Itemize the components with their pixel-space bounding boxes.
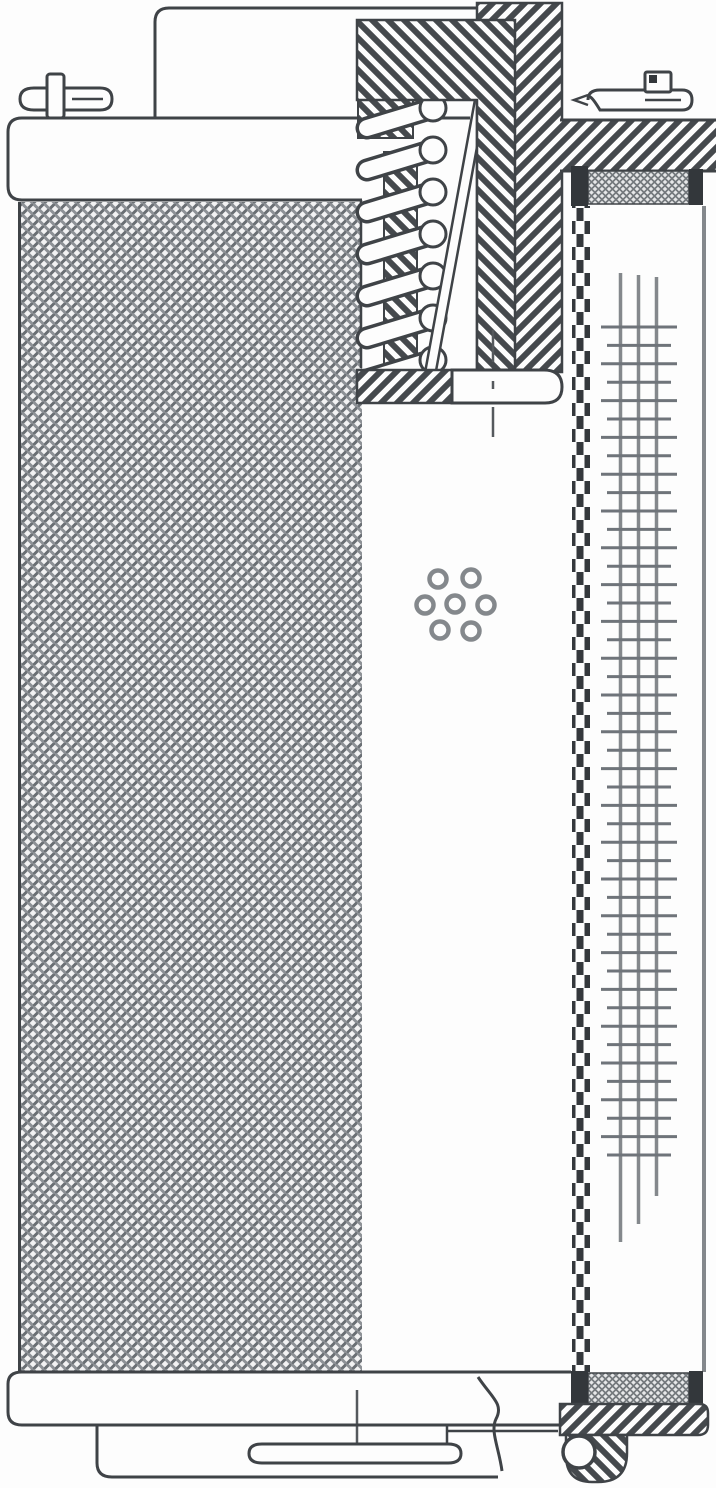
bottom-bayonet-lug: [249, 1444, 461, 1463]
bottom-end-cap: [8, 1372, 571, 1477]
bottom-cap-band-outline: [8, 1372, 571, 1425]
mesh-body: [18, 202, 362, 1372]
spring-coil-end: [420, 179, 446, 205]
perforated-core-strip: [572, 206, 590, 1372]
bottom-gasket-mesh: [588, 1373, 689, 1404]
spring-seat-hatched: [357, 370, 452, 403]
outer-mesh-screen: [18, 202, 362, 1372]
right-tab-tip: [574, 95, 588, 105]
perforation-hole: [463, 570, 480, 587]
perforation-hole: [463, 623, 480, 640]
bottom-gasket-left-block: [571, 1371, 588, 1406]
perforation-hole: [447, 596, 464, 613]
bottom-flange-hatched: [560, 1404, 708, 1435]
top-gasket-right-block: [689, 169, 703, 205]
flange-hatched-band: [560, 119, 716, 172]
top-gasket-left-block: [571, 166, 588, 206]
bottom-gasket-right-block: [689, 1371, 703, 1406]
right-bayonet-tab: [574, 72, 692, 110]
center-perforations: [417, 570, 495, 640]
top-gasket-mesh: [588, 171, 689, 204]
spring-seat-plate: [452, 370, 562, 403]
right-filter-column: [560, 166, 708, 1482]
right-tab-post: [645, 72, 671, 92]
spring-coil-end: [420, 221, 446, 247]
seal-oring: [563, 1436, 595, 1468]
drawing-canvas: Filter element cross-section technical d…: [0, 0, 716, 1488]
perforation-hole: [478, 597, 495, 614]
perforation-hole: [430, 571, 447, 588]
filter-element-drawing: Filter element cross-section technical d…: [0, 0, 716, 1488]
pleated-media: [601, 273, 677, 1242]
centerlines: [357, 330, 493, 1443]
right-top-flange: [560, 72, 716, 172]
right-tab-post-mark: [649, 75, 657, 83]
left-bayonet-tab: [20, 74, 112, 118]
spring-coil-end: [420, 137, 446, 163]
left-tab-post: [47, 74, 64, 118]
perforation-hole: [417, 597, 434, 614]
perforation-hole: [432, 622, 449, 639]
